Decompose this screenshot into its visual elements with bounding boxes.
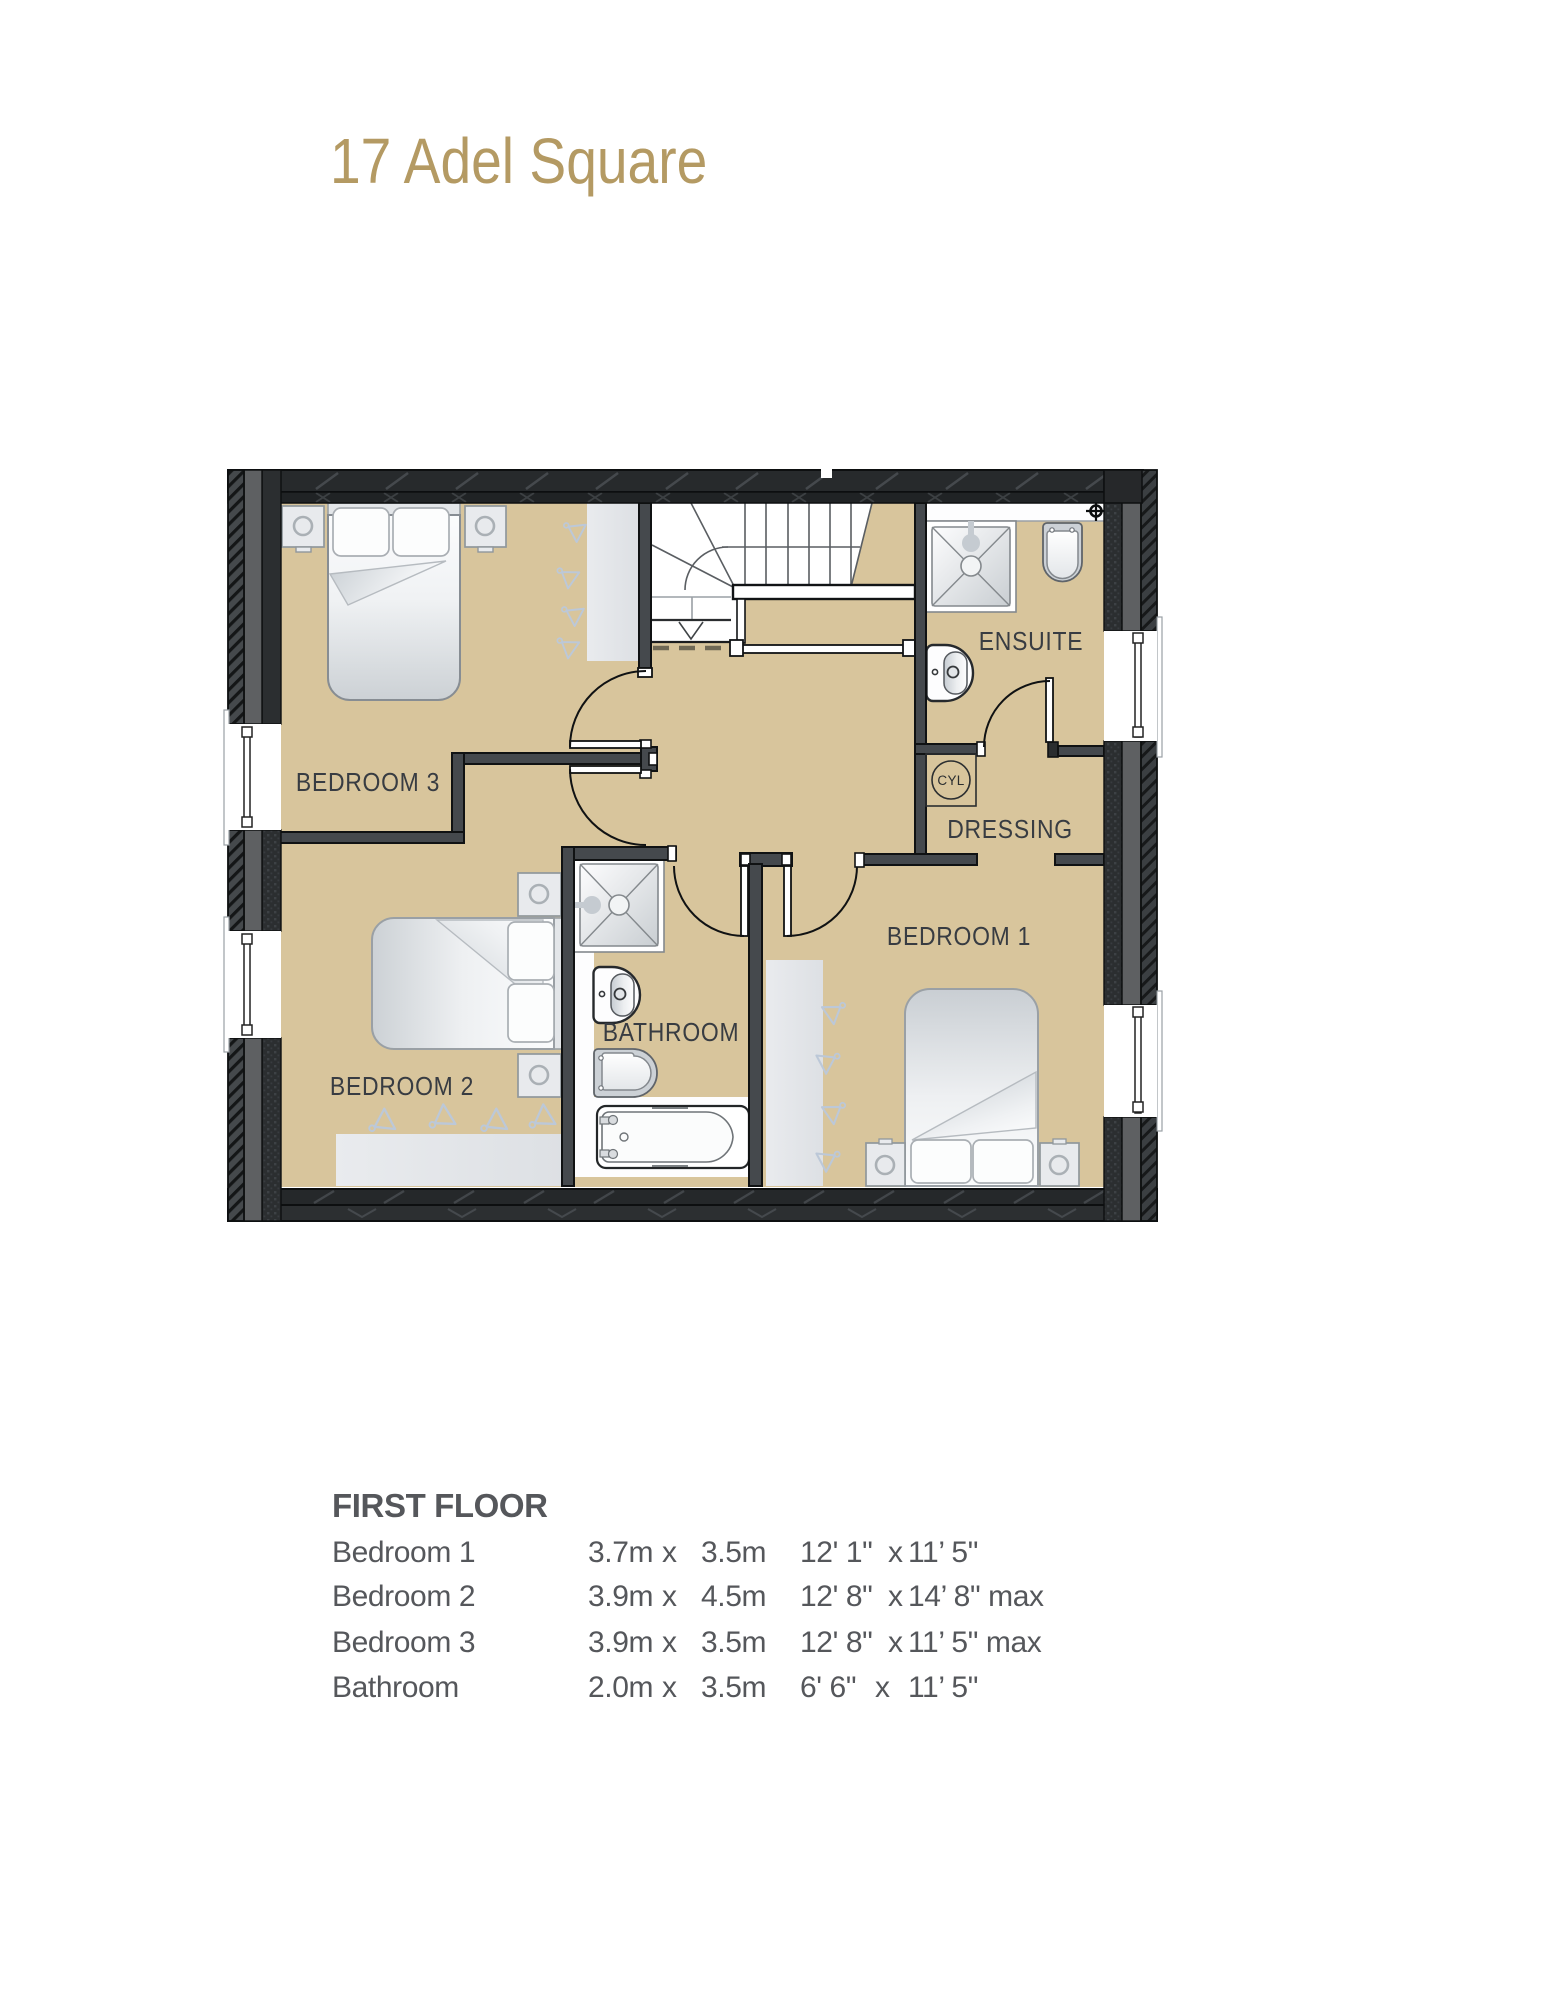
svg-text:BEDROOM 3: BEDROOM 3 xyxy=(296,769,440,797)
svg-text:BEDROOM 1: BEDROOM 1 xyxy=(887,923,1031,951)
svg-text:BEDROOM 2: BEDROOM 2 xyxy=(330,1073,474,1101)
svg-text:ENSUITE: ENSUITE xyxy=(979,628,1083,656)
svg-text:BATHROOM: BATHROOM xyxy=(603,1019,740,1047)
svg-text:CYL: CYL xyxy=(937,773,964,788)
svg-text:DRESSING: DRESSING xyxy=(947,816,1073,844)
